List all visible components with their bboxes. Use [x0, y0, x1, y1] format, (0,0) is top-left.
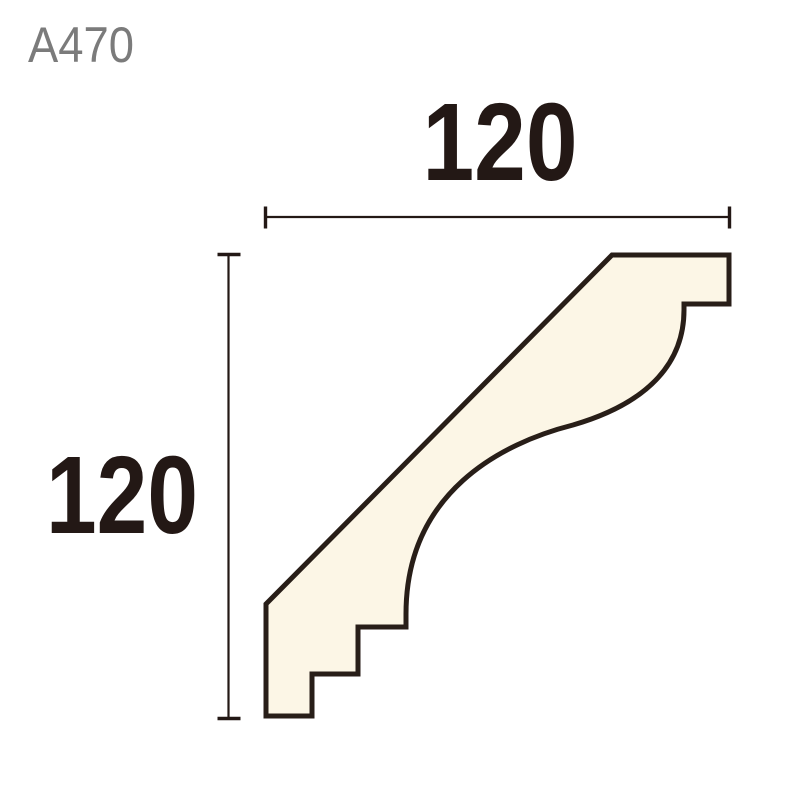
width-dimension-value: 120	[423, 81, 578, 204]
height-dimension: 120	[46, 255, 241, 719]
product-code-label: A470	[28, 17, 134, 73]
molding-profile-diagram: A470 120 120	[0, 0, 800, 800]
height-dimension-value: 120	[46, 434, 198, 557]
molding-profile-shape	[266, 255, 729, 716]
width-dimension: 120	[266, 81, 730, 229]
diagram-canvas: A470 120 120	[0, 0, 800, 800]
